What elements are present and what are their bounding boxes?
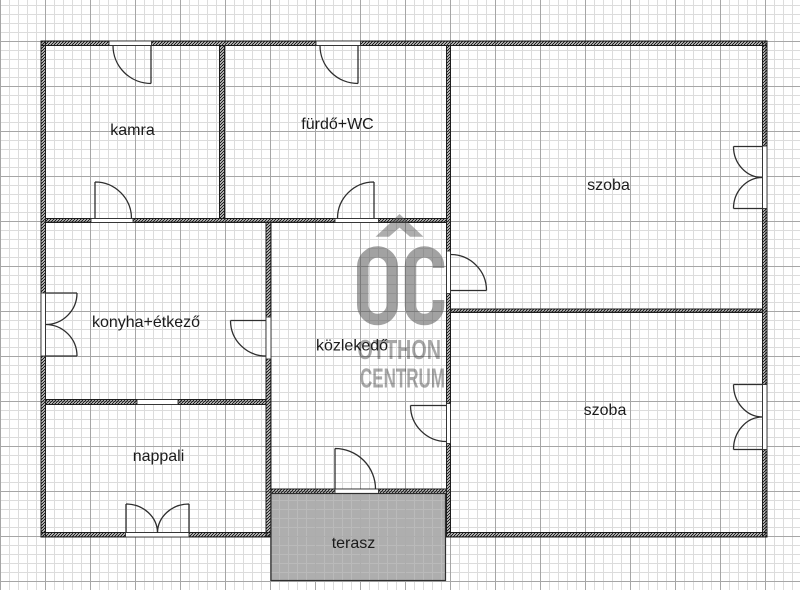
svg-text:OTTHON: OTTHON xyxy=(358,334,442,365)
svg-text:fürdő+WC: fürdő+WC xyxy=(301,116,373,133)
svg-text:terasz: terasz xyxy=(332,535,376,552)
svg-text:szoba: szoba xyxy=(587,177,630,194)
svg-text:nappali: nappali xyxy=(133,448,185,465)
svg-text:szoba: szoba xyxy=(584,402,627,419)
svg-text:CENTRUM: CENTRUM xyxy=(360,363,445,394)
svg-text:kamra: kamra xyxy=(110,122,155,139)
svg-text:konyha+étkező: konyha+étkező xyxy=(92,314,200,331)
